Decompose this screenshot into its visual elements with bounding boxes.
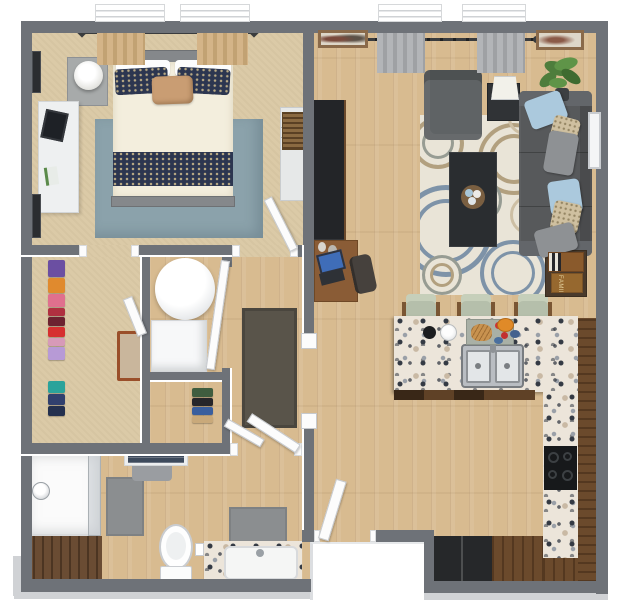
hanging-clothes — [48, 327, 65, 337]
curtain — [97, 33, 145, 65]
doorway-carpet — [85, 245, 137, 257]
washer — [151, 320, 207, 372]
bath-mat — [229, 507, 287, 545]
wall-hall-kitchen-lower — [302, 429, 314, 530]
foundation-edge — [13, 556, 21, 596]
window — [378, 4, 442, 22]
hanging-coat — [192, 398, 213, 406]
bread-loaf — [471, 324, 492, 341]
hanging-clothes — [48, 278, 65, 293]
white-kettle — [440, 324, 457, 341]
foundation-edge — [420, 592, 608, 600]
hanging-clothes — [48, 394, 65, 405]
doorway-carpet — [238, 245, 294, 257]
hanging-clothes — [48, 294, 65, 307]
hanging-towel — [132, 466, 172, 481]
wall-utility-coat-divider — [150, 372, 222, 382]
accent-pillow — [152, 75, 194, 104]
cooktop — [544, 446, 577, 490]
toilet-paper-holder — [195, 543, 204, 556]
wall-utility-east — [222, 368, 232, 443]
rug-floral-motif — [422, 255, 462, 295]
base-cabinets — [492, 536, 543, 582]
curtain — [197, 33, 248, 65]
wall-art — [318, 30, 368, 48]
wall-frame — [32, 51, 41, 93]
toilet — [158, 524, 194, 582]
door-jamb — [131, 245, 139, 257]
wall-exterior-top — [21, 21, 608, 33]
wall-bedroom-south — [21, 245, 85, 257]
wall-frame — [588, 112, 601, 169]
patterned-blanket-band — [113, 152, 233, 186]
vanity-faucet — [256, 549, 264, 557]
hanging-coat — [192, 388, 213, 397]
blue-bowl — [494, 337, 503, 344]
game-box-label: FAMILY — [557, 275, 563, 293]
shower-head — [32, 482, 50, 500]
refrigerator — [434, 536, 492, 582]
hanging-coat — [192, 416, 213, 423]
wall-bedroom-south — [137, 245, 238, 257]
wall-closet-east — [140, 257, 150, 443]
wall-bedroom-living-divider — [303, 33, 314, 245]
door-jamb — [232, 245, 240, 257]
door-jamb — [230, 443, 238, 456]
vase — [318, 242, 326, 252]
wall-exterior-right — [596, 21, 608, 594]
wall-hall-kitchen-upper — [302, 245, 314, 335]
game-box-checkers — [548, 252, 584, 272]
wall-entry-stub — [376, 530, 424, 542]
door-jamb — [79, 245, 87, 257]
hanging-clothes — [48, 338, 65, 346]
hanging-clothes — [48, 406, 65, 416]
book — [44, 166, 59, 186]
doormat-rug — [242, 308, 297, 428]
hanging-clothes — [48, 347, 65, 360]
wall-art — [536, 30, 584, 50]
media-console — [314, 100, 346, 240]
decor-tray — [461, 185, 485, 209]
wall-bathroom-north — [21, 443, 237, 456]
wall-exterior-bottom-left — [21, 579, 311, 592]
bathroom-cabinet — [24, 536, 102, 580]
wall-end-cap — [301, 333, 317, 349]
hanging-clothes — [48, 260, 65, 277]
hanging-clothes — [48, 317, 65, 326]
bath-mat — [106, 477, 144, 536]
window — [95, 4, 165, 22]
black-bowl — [423, 326, 436, 339]
base-cabinets — [543, 558, 578, 582]
hanging-clothes — [48, 381, 65, 393]
curtain — [477, 33, 525, 73]
floor-plan-render: FAMILY — [0, 0, 626, 600]
bed — [111, 50, 235, 208]
table-lamp — [74, 61, 103, 90]
window — [462, 4, 526, 22]
table-lamp-shade — [491, 76, 519, 100]
water-heater — [155, 258, 215, 320]
door-jamb — [370, 530, 376, 542]
wall-frame — [32, 194, 41, 238]
hanging-clothes — [48, 308, 65, 316]
armchair — [424, 70, 482, 140]
wall-exterior-bottom-right — [424, 581, 608, 593]
footboard — [111, 196, 235, 207]
double-sink — [461, 344, 524, 388]
wall-entry-step — [424, 530, 434, 587]
wall-end-cap — [301, 413, 317, 429]
game-box-family: FAMILY — [551, 273, 583, 293]
entry-landing — [310, 542, 424, 600]
window — [180, 4, 250, 22]
wall-exterior-left — [21, 21, 32, 592]
curtain — [377, 33, 425, 73]
cabinet-side-panel — [578, 318, 596, 582]
island-cabinet-face — [394, 390, 535, 400]
shower-glass-door — [88, 452, 101, 536]
hanging-coat — [192, 407, 213, 415]
blue-bowl — [510, 330, 520, 338]
